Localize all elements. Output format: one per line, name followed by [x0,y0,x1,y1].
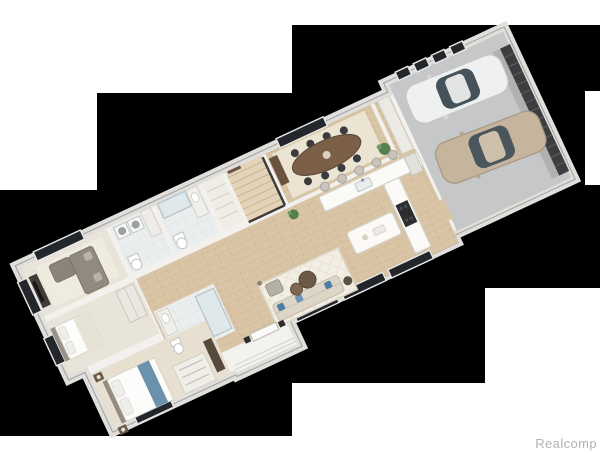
realcomp-watermark: Realcomp [535,436,597,451]
house-rotated-group [4,22,592,447]
floor-plan-render [0,0,600,455]
listing-photo: Realcomp [0,0,600,455]
